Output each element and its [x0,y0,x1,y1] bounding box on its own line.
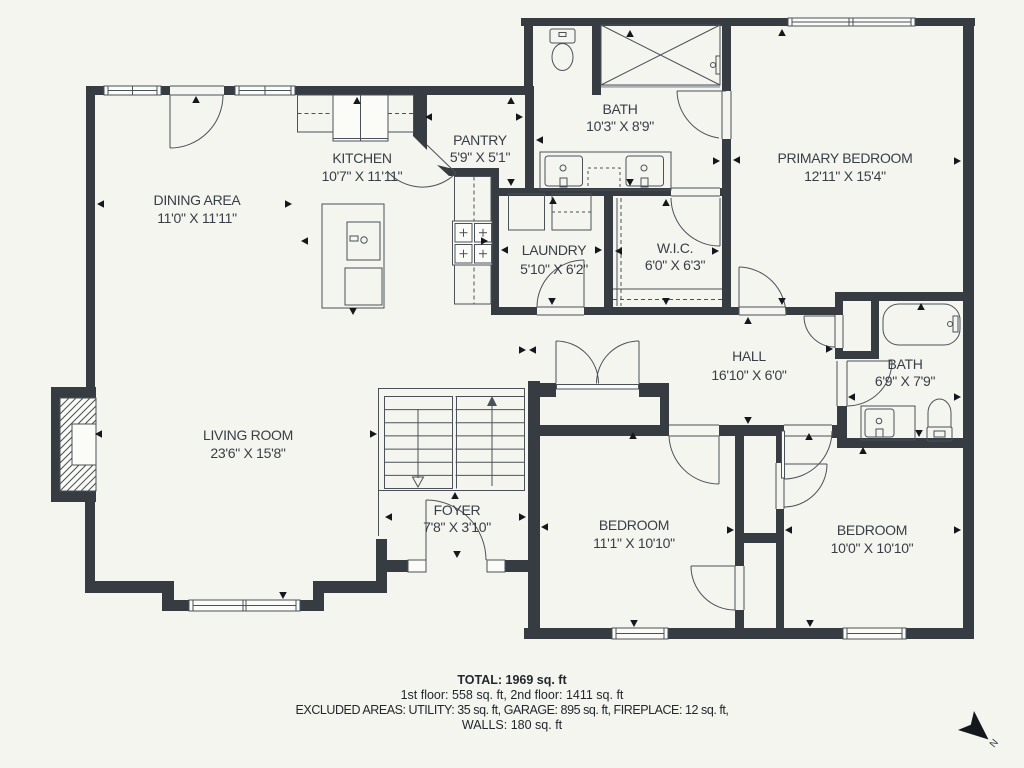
svg-text:KITCHEN: KITCHEN [332,150,391,166]
svg-text:7'8" X 3'10": 7'8" X 3'10" [423,519,491,535]
svg-text:EXCLUDED AREAS: UTILITY: 35 sq: EXCLUDED AREAS: UTILITY: 35 sq. ft, GARA… [296,703,729,717]
svg-text:BEDROOM: BEDROOM [837,522,907,538]
svg-text:16'10" X 6'0": 16'10" X 6'0" [711,367,787,383]
svg-text:BATH: BATH [602,101,637,117]
svg-text:BATH: BATH [887,356,922,372]
svg-text:10'0" X 10'10": 10'0" X 10'10" [831,540,914,556]
svg-text:TOTAL: 1969 sq. ft: TOTAL: 1969 sq. ft [457,673,567,687]
svg-text:LAUNDRY: LAUNDRY [522,242,588,258]
svg-text:WALLS: 180 sq. ft: WALLS: 180 sq. ft [462,718,563,732]
svg-text:5'9" X 5'1": 5'9" X 5'1" [450,149,511,165]
svg-text:HALL: HALL [732,348,766,364]
svg-text:PRIMARY BEDROOM: PRIMARY BEDROOM [777,150,912,166]
svg-text:10'3" X 8'9": 10'3" X 8'9" [586,118,654,134]
svg-text:1st floor: 558 sq. ft, 2nd flo: 1st floor: 558 sq. ft, 2nd floor: 1411 s… [401,688,624,702]
svg-text:FOYER: FOYER [434,502,481,518]
svg-text:DINING AREA: DINING AREA [154,192,242,208]
svg-text:6'0" X 6'3": 6'0" X 6'3" [645,257,706,273]
svg-text:10'7" X 11'11": 10'7" X 11'11" [322,168,403,184]
svg-text:W.I.C.: W.I.C. [657,240,693,256]
svg-text:11'0" X 11'11": 11'0" X 11'11" [157,210,237,226]
svg-text:PANTRY: PANTRY [453,132,508,148]
svg-text:23'6" X 15'8": 23'6" X 15'8" [210,445,286,461]
svg-text:LIVING ROOM: LIVING ROOM [203,427,293,443]
svg-text:12'11" X 15'4": 12'11" X 15'4" [804,168,886,184]
svg-text:BEDROOM: BEDROOM [599,517,669,533]
svg-text:6'9" X 7'9": 6'9" X 7'9" [875,373,936,389]
svg-text:5'10" X 6'2": 5'10" X 6'2" [520,261,588,277]
svg-text:11'1" X 10'10": 11'1" X 10'10" [593,535,675,551]
